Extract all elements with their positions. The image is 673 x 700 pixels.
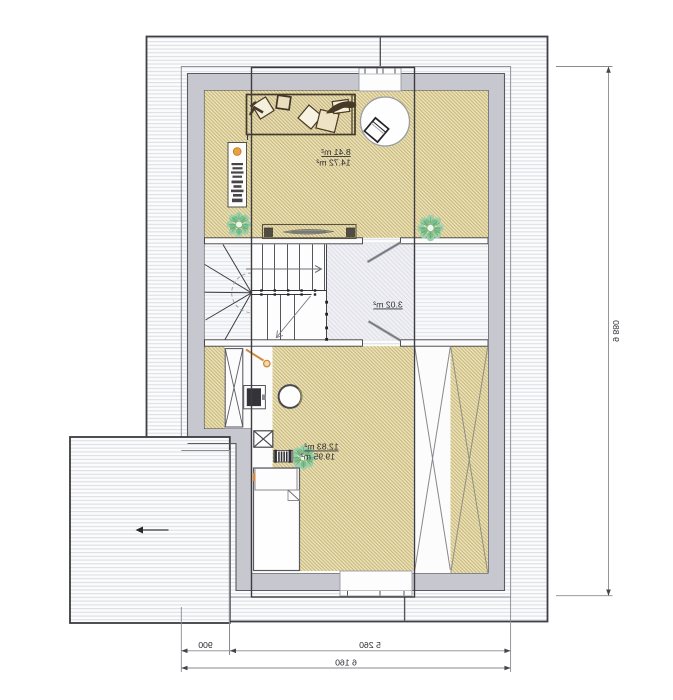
svg-text:19.95 m²: 19.95 m²: [301, 452, 335, 462]
svg-text:12.83 m²: 12.83 m²: [304, 442, 338, 452]
svg-text:8.41 m²: 8.41 m²: [321, 147, 351, 157]
svg-text:3.02 m²: 3.02 m²: [373, 300, 403, 310]
svg-text:9 880: 9 880: [611, 320, 621, 342]
svg-text:14.72 m²: 14.72 m²: [316, 158, 350, 168]
svg-text:6 160: 6 160: [335, 657, 357, 667]
svg-text:900: 900: [198, 640, 213, 650]
svg-text:5 260: 5 260: [359, 640, 381, 650]
